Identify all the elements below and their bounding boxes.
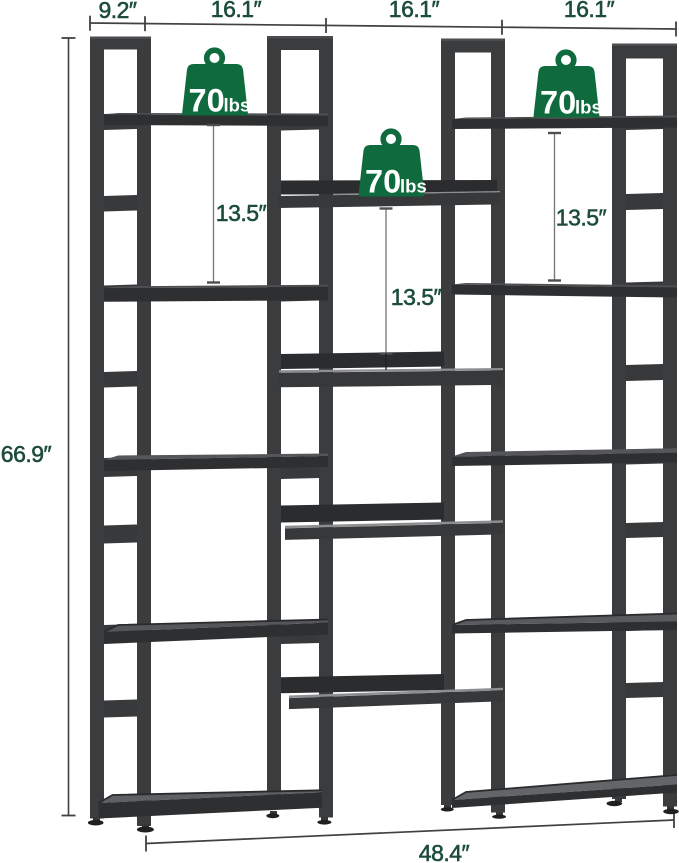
svg-text:66.9″: 66.9″	[1, 441, 52, 467]
svg-text:13.5″: 13.5″	[391, 284, 442, 310]
svg-text:48.4″: 48.4″	[419, 840, 470, 863]
svg-text:13.5″: 13.5″	[556, 205, 607, 231]
svg-text:16.1″: 16.1″	[389, 0, 440, 22]
svg-text:16.1″: 16.1″	[211, 0, 262, 22]
svg-text:16.1″: 16.1″	[564, 0, 615, 22]
svg-text:9.2″: 9.2″	[98, 0, 136, 23]
svg-text:13.5″: 13.5″	[216, 200, 267, 226]
